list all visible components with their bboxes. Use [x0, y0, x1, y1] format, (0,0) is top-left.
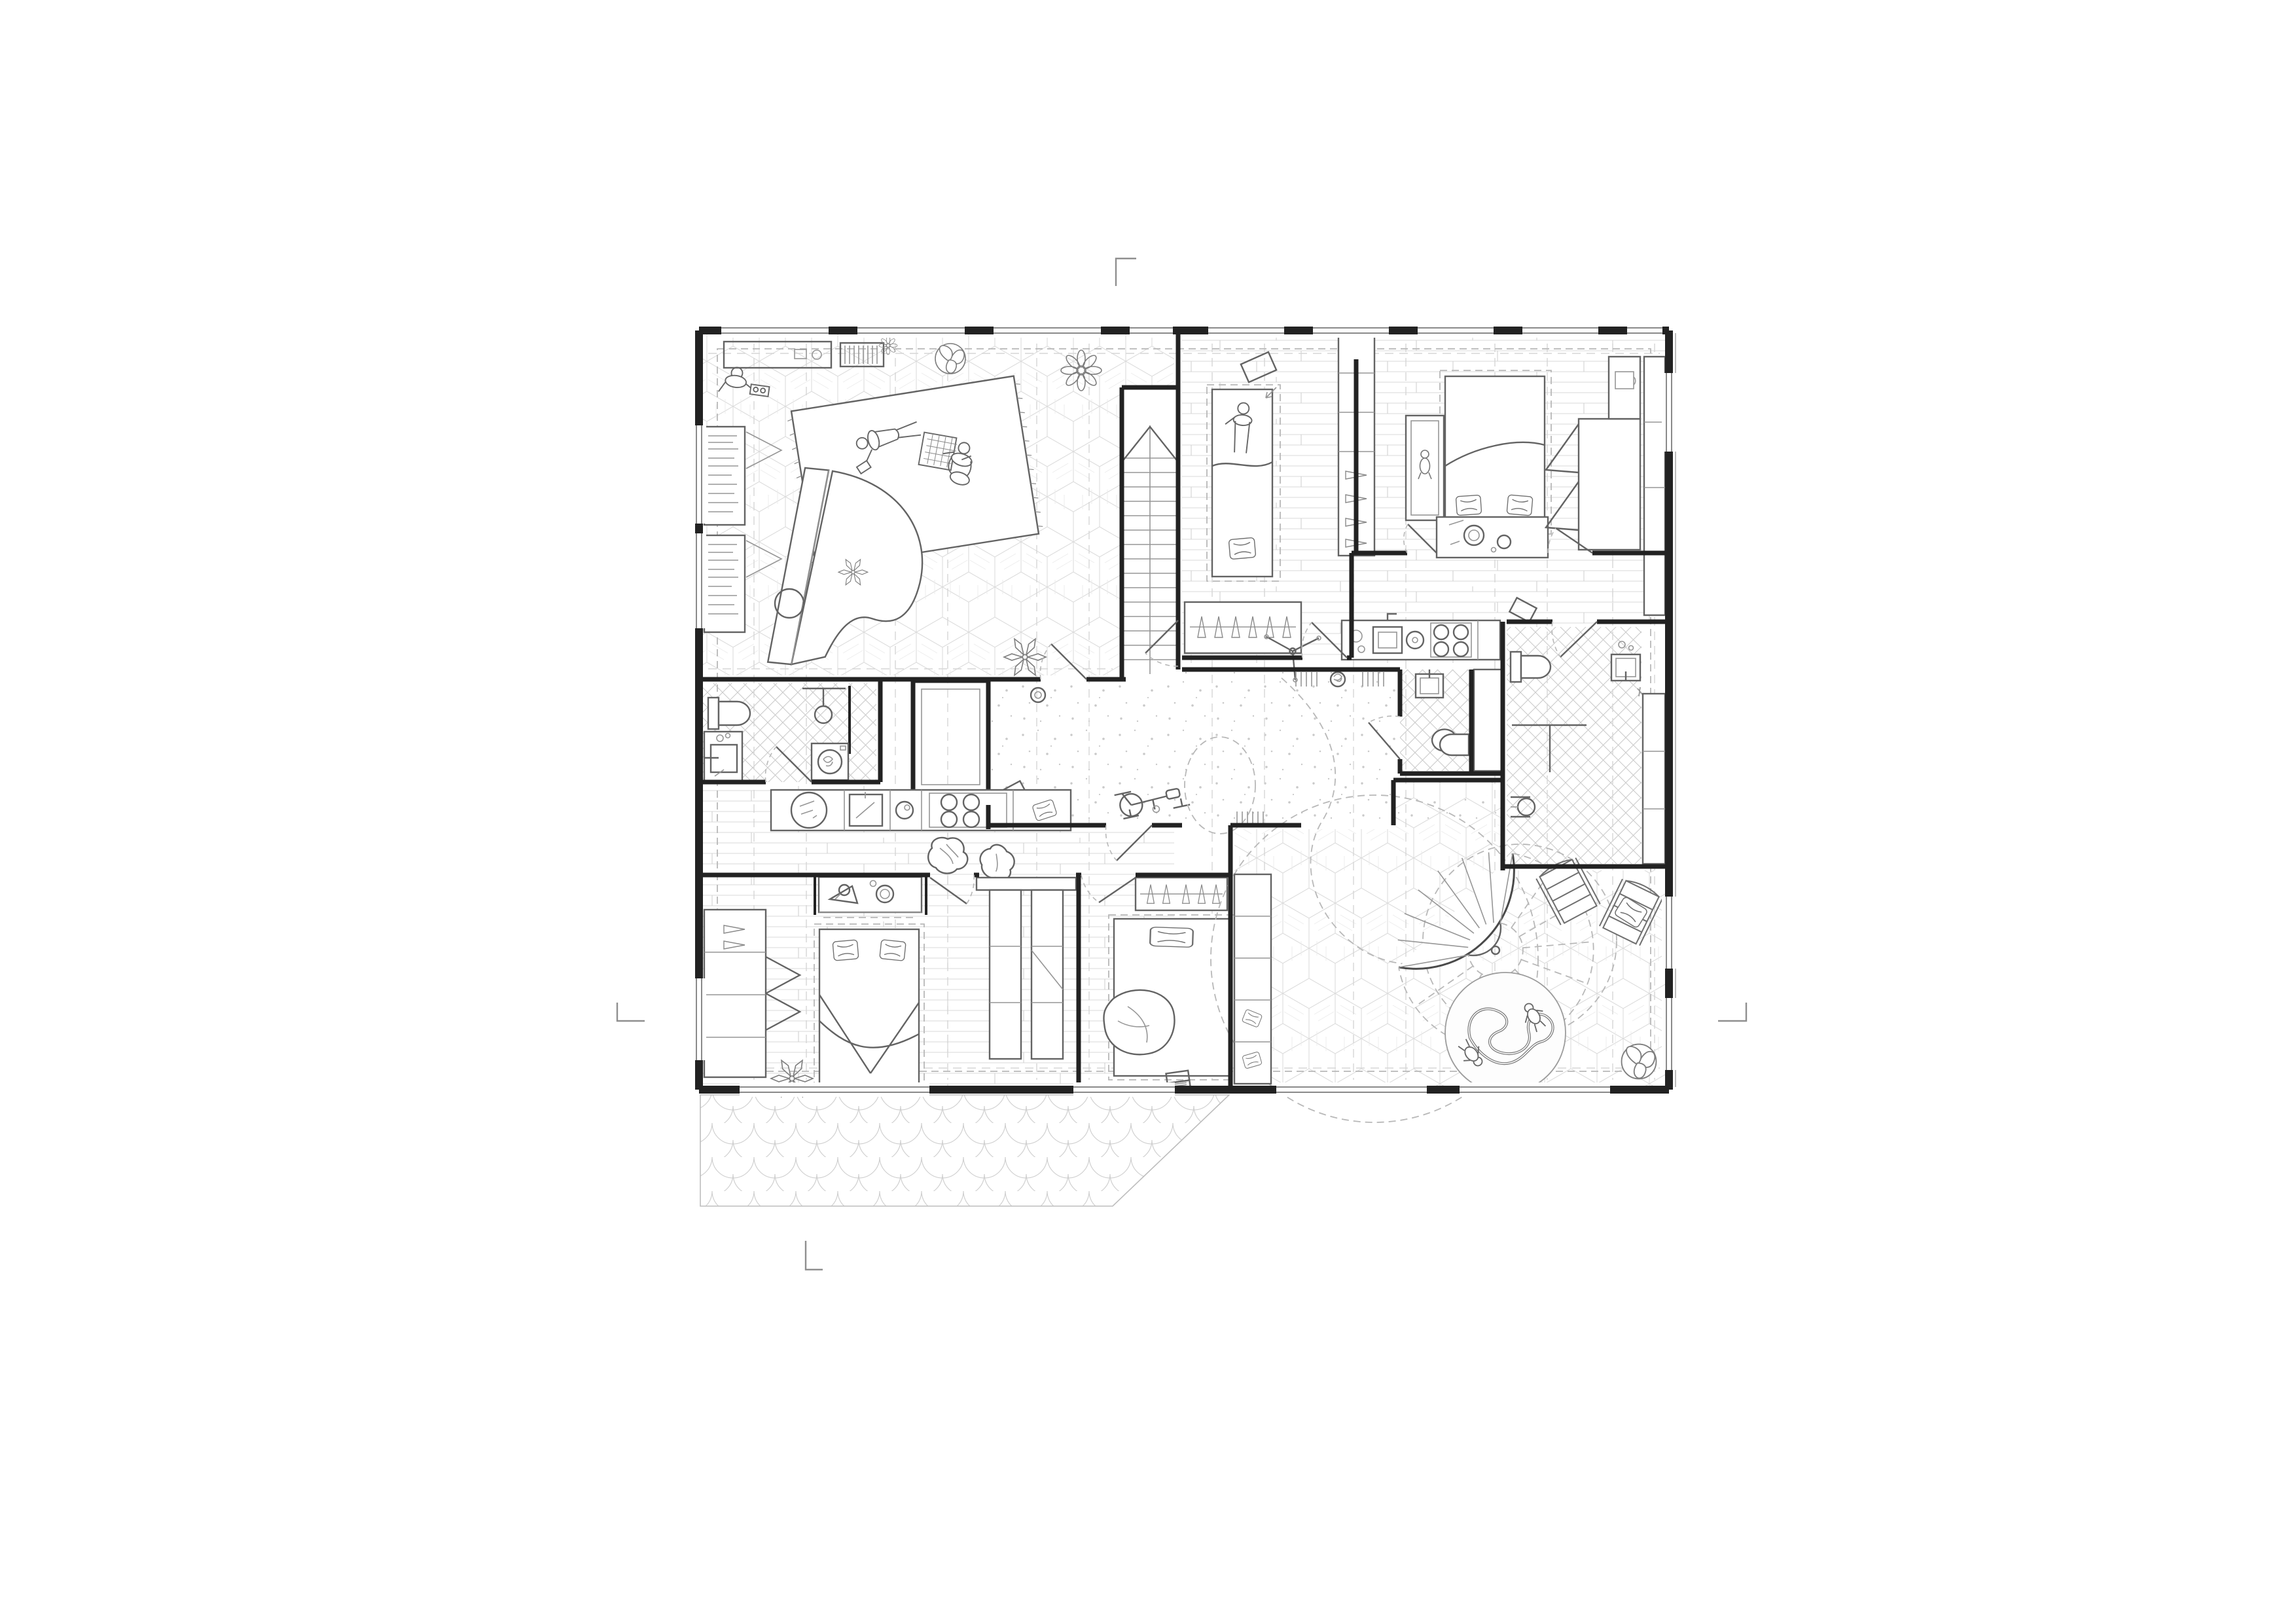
pillow-icon	[880, 940, 906, 961]
lift-shaft	[913, 681, 988, 793]
floor-patio-scales	[700, 1095, 1229, 1206]
hanger-closet	[1136, 878, 1227, 910]
kitchenette-counter	[1342, 614, 1500, 660]
main-staircase	[1122, 425, 1178, 674]
vanity-sink	[704, 732, 742, 782]
pillow-icon	[1229, 537, 1255, 559]
bean-bag	[1103, 990, 1174, 1055]
pillow-icon	[1456, 495, 1481, 515]
bedroom-southwest-2	[1103, 915, 1234, 1090]
baby-crib	[1406, 416, 1444, 520]
floor-plan-svg: Residential apartment floor plan — black…	[0, 0, 2296, 1623]
wall-cabinet	[1609, 357, 1640, 419]
leaf-plant-icon	[1622, 1044, 1657, 1079]
wall-sink	[1416, 669, 1443, 698]
potted-plant-icon	[935, 344, 965, 374]
crop-mark-left	[617, 1003, 645, 1021]
crop-mark-bottom	[806, 1241, 823, 1270]
drawing-sheet: Residential apartment floor plan — black…	[0, 0, 2296, 1623]
vanity-alcove-with-mirror	[819, 877, 922, 918]
changing-dresser-with-basins	[1437, 517, 1548, 558]
crop-mark-top	[1116, 259, 1136, 286]
storage-cabinets	[1643, 694, 1665, 864]
crop-mark-right	[1718, 1003, 1746, 1021]
window-south	[740, 1082, 1610, 1097]
washing-machine	[812, 743, 848, 780]
shelf-column-with-pillows	[1234, 874, 1271, 1084]
pillow-icon	[833, 940, 859, 961]
hall-column-cabinet	[1474, 669, 1503, 771]
round-play-rug	[1445, 972, 1566, 1093]
wide-pillow-icon	[1150, 927, 1193, 947]
pillow-icon	[1507, 495, 1533, 516]
